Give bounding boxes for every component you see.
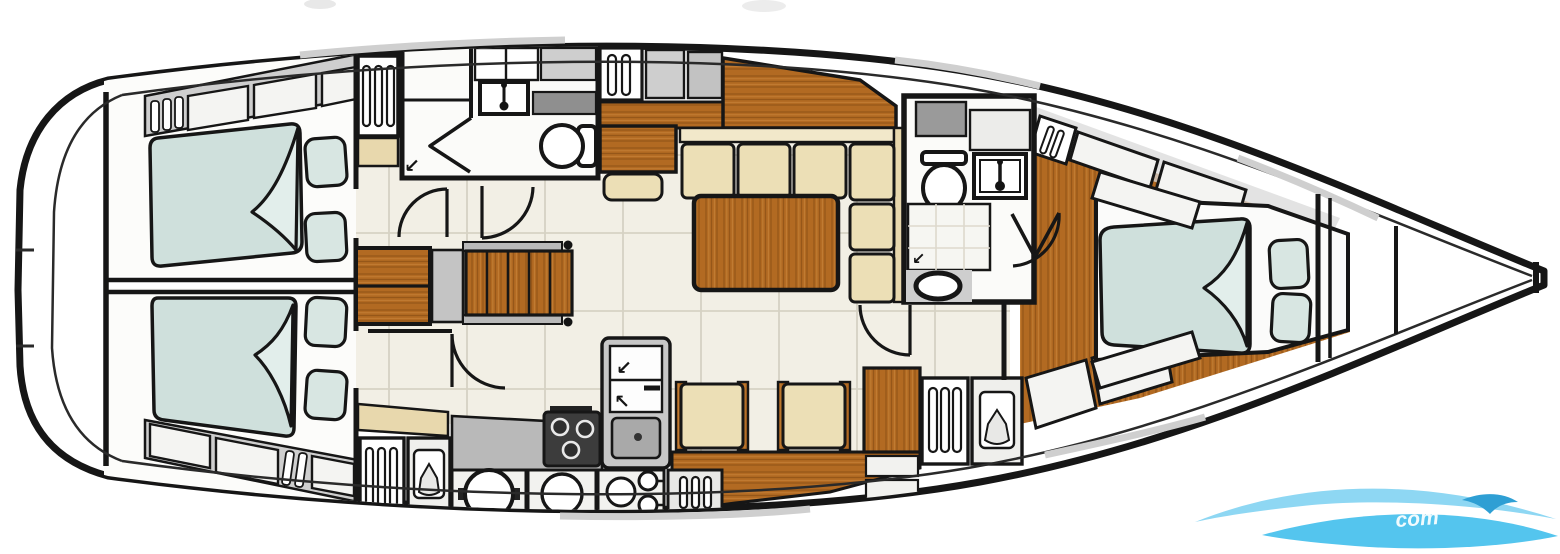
floor-plan-canvas: ↙ [0, 0, 1560, 554]
watermark-text: com [1395, 506, 1440, 532]
yacht-floor-plan-svg: ↙ [0, 0, 1560, 554]
fridge-arrow-icon: ↙ [616, 357, 632, 379]
top-smudges [304, 0, 786, 12]
forward-head: ↙ [904, 96, 1034, 302]
wet-locker-mid [972, 378, 1022, 464]
double-bed-aft-starboard [152, 298, 296, 436]
salon-table [694, 196, 838, 290]
hanging-locker-mid [922, 378, 968, 464]
washbasin-oval-icon [906, 270, 972, 302]
drain-icon: ↙ [912, 249, 925, 268]
wood-cabinet [864, 368, 920, 452]
sink-icon [480, 82, 528, 114]
shower-area: ↙ [908, 204, 990, 270]
hanging-locker-salon [600, 48, 722, 100]
toilet-icon [541, 125, 596, 167]
double-bed-aft-port [150, 124, 302, 266]
wet-locker-galley [408, 438, 450, 516]
double-bed-forward [1100, 219, 1250, 353]
drain-icon: ↙ [404, 155, 420, 177]
engine-box [356, 248, 430, 324]
toilet-icon [922, 152, 966, 211]
stove-icon [544, 406, 600, 466]
watermark-logo: com [1195, 489, 1558, 549]
sink-icon [974, 154, 1026, 198]
shelf-slats-icon [151, 97, 183, 132]
fridge-icon: ↙ ↖ [602, 338, 670, 468]
hanging-locker-aft [358, 56, 398, 166]
fridge-arrow-icon: ↖ [614, 391, 630, 413]
companionway-stairs [432, 241, 573, 327]
